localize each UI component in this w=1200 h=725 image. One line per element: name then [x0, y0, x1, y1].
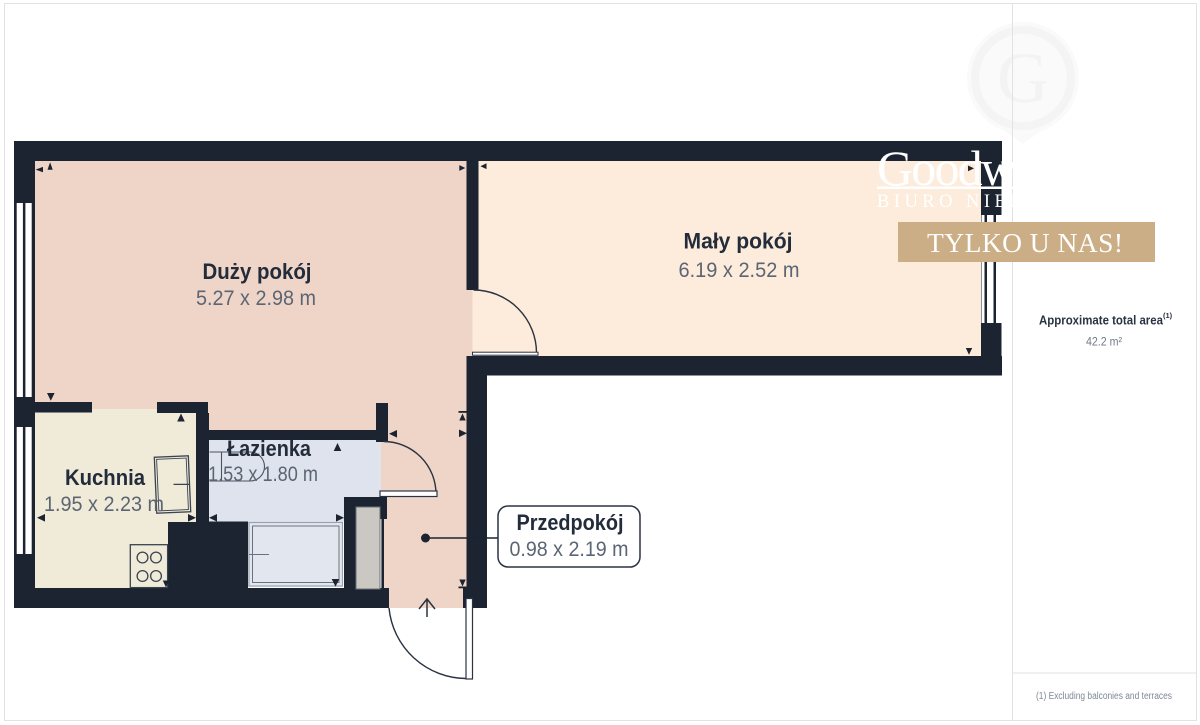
svg-text:5.27 x 2.98 m: 5.27 x 2.98 m: [196, 287, 316, 310]
svg-text:6.19 x 2.52 m: 6.19 x 2.52 m: [679, 259, 800, 282]
svg-text:Kuchnia: Kuchnia: [65, 465, 145, 490]
svg-text:TYLKO U NAS!: TYLKO U NAS!: [927, 227, 1123, 258]
svg-text:G: G: [997, 38, 1049, 118]
svg-text:Approximate total area: Approximate total area: [1039, 314, 1164, 328]
svg-text:(1): (1): [1163, 311, 1173, 320]
svg-text:(1) Excluding balconies and te: (1) Excluding balconies and terraces: [1036, 691, 1172, 702]
svg-text:42.2 m²: 42.2 m²: [1086, 335, 1122, 349]
svg-text:Łazienka: Łazienka: [227, 436, 311, 461]
svg-text:Przedpokój: Przedpokój: [517, 510, 624, 535]
svg-text:Mały pokój: Mały pokój: [684, 229, 793, 254]
svg-text:1.95 x 2.23 m: 1.95 x 2.23 m: [44, 493, 164, 516]
svg-text:1.53 x 1.80 m: 1.53 x 1.80 m: [208, 463, 318, 486]
svg-text:Duży pokój: Duży pokój: [203, 259, 312, 284]
svg-text:0.98 x 2.19 m: 0.98 x 2.19 m: [510, 538, 629, 561]
